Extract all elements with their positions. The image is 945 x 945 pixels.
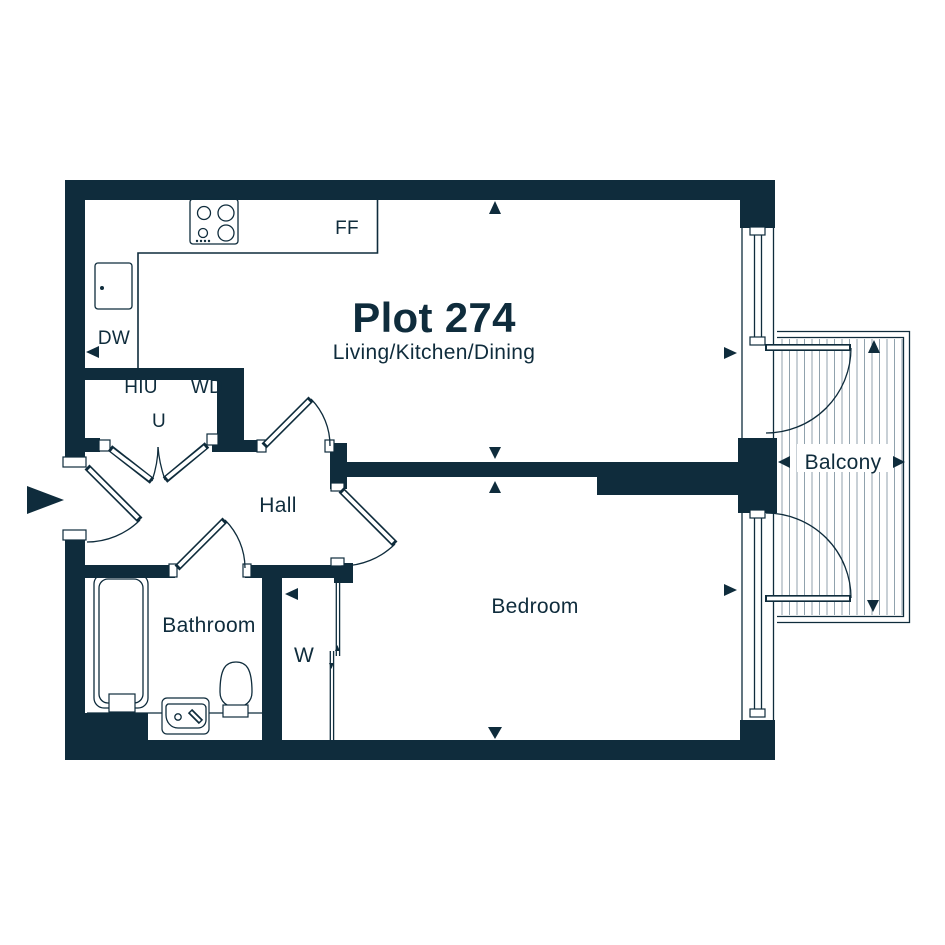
wall-living-bedroom-thick — [597, 462, 740, 495]
dishwasher-icon — [95, 263, 132, 309]
balcony-decking-hatch — [782, 339, 902, 615]
cupboard-door-swing-arc — [152, 447, 158, 481]
bedroom-window-glazing — [755, 517, 762, 710]
hob-burner — [198, 207, 211, 220]
entry-door-swing-arc — [87, 520, 140, 542]
doors — [63, 348, 851, 741]
toilet-cistern — [223, 705, 248, 717]
window-frame — [750, 337, 765, 345]
living-window-glazing — [755, 234, 762, 340]
dimension-arrow-down-icon — [488, 727, 502, 739]
floor-plan-page: Balcony — [0, 0, 945, 945]
cupboard-door-leaf-inner — [167, 447, 205, 478]
cupboard-door-swing-arc — [158, 447, 165, 480]
wall-cupboard-stub — [85, 438, 100, 452]
dimension-arrow-down-icon — [867, 600, 879, 612]
hob-burner — [199, 229, 208, 238]
wall-left-upper — [65, 180, 85, 458]
washer-dryer-label: WD — [191, 377, 223, 398]
balcony: Balcony — [777, 332, 910, 623]
dimension-arrow-left-icon — [778, 456, 790, 468]
bathtub-tap-end — [109, 694, 135, 712]
wall-bottom-left-block — [65, 713, 148, 760]
wall-right-mid-block — [738, 438, 777, 513]
dimension-arrow-down-icon — [489, 447, 501, 459]
hob-burner — [218, 225, 234, 241]
dimension-arrow-left-icon — [285, 588, 298, 600]
toilet-icon — [220, 662, 252, 717]
living-door-leaf-inner — [266, 401, 309, 444]
wall-bottom — [65, 740, 775, 760]
bathroom-label: Bathroom — [162, 614, 255, 637]
utility-label: U — [152, 411, 166, 432]
bedroom-door-frame — [331, 558, 344, 566]
dishwasher-knob — [100, 286, 104, 290]
cupboard-door-leaf-inner — [112, 450, 150, 479]
living-kitchen-dining-label: Living/Kitchen/Dining — [333, 341, 535, 364]
wardrobe-sliding-door — [330, 578, 339, 740]
toilet-bowl — [220, 662, 252, 707]
living-door-swing-arc — [311, 399, 330, 446]
bathtub-inner — [99, 579, 143, 703]
bathroom-door-leaf-inner — [179, 522, 223, 566]
hob-control-dot — [200, 240, 202, 242]
window-frame — [750, 510, 765, 518]
hall-label: Hall — [259, 494, 296, 517]
bathroom-fixtures — [87, 574, 262, 734]
bathtub-outer — [94, 574, 148, 708]
entry-door-frame — [63, 457, 86, 467]
bathroom-door-frame — [243, 564, 251, 577]
dimension-arrow-up-icon — [489, 201, 501, 214]
hob-outline — [190, 199, 238, 244]
bedroom-door-swing-arc — [341, 544, 395, 566]
bathroom-door-swing-arc — [225, 520, 245, 568]
wall-right-top-block — [740, 180, 775, 228]
bedroom-door-leaf-inner — [343, 492, 393, 542]
wall-hall-top — [212, 440, 264, 452]
hob-burner — [218, 205, 234, 221]
bathtub-icon — [94, 574, 148, 712]
heat-interface-unit-label: HIU — [124, 377, 158, 398]
cupboard-door-frame — [207, 434, 218, 445]
balcony-bedroom-door-swing-arc — [766, 513, 851, 598]
entry-arrow-icon — [27, 486, 64, 514]
dimension-arrow-right-icon — [724, 347, 737, 359]
wardrobe-label: W — [294, 644, 314, 667]
wall-living-bedroom-thin — [343, 462, 597, 477]
plot-title: Plot 274 — [352, 294, 516, 341]
dimension-arrow-up-icon — [868, 340, 880, 353]
dimension-arrow-right-icon — [724, 584, 737, 596]
floor-plan-svg: Balcony — [0, 0, 945, 945]
bedroom-label: Bedroom — [491, 595, 578, 618]
wall-right-bottom-block — [740, 720, 775, 760]
entry-door-frame — [63, 530, 86, 540]
wall-bathroom-right — [262, 565, 282, 745]
balcony-border-inner — [777, 338, 904, 617]
balcony-living-door-swing-arc — [766, 348, 851, 433]
dimension-arrow-up-icon — [489, 481, 501, 493]
hob-icon — [190, 199, 238, 244]
sink-icon — [162, 698, 209, 734]
wall-top — [65, 180, 775, 200]
balcony-label: Balcony — [805, 451, 882, 474]
window-frame — [750, 709, 765, 717]
hob-control-dot — [196, 240, 198, 242]
wall-bathroom-top-right — [245, 565, 334, 578]
hob-control-dot — [204, 240, 206, 242]
dishwasher-label: DW — [98, 328, 130, 349]
entry-door-leaf-inner — [89, 469, 138, 518]
cupboard-door-frame — [99, 440, 110, 451]
window-frame — [750, 227, 765, 235]
hob-control-dot — [208, 240, 210, 242]
dishwasher-outline — [95, 263, 132, 309]
fridge-freezer-label: FF — [335, 218, 359, 239]
labels: Plot 274 Living/Kitchen/Dining FF DW HIU… — [98, 218, 579, 667]
